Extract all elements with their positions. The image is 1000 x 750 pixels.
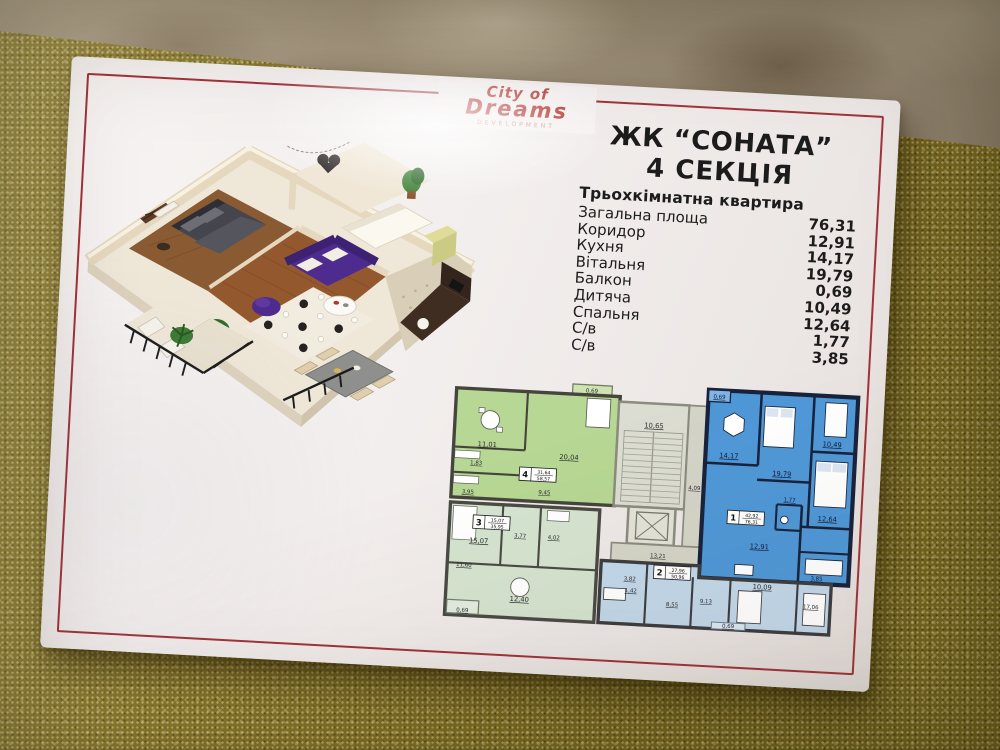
dim-label: 14,17 <box>719 452 739 461</box>
dim-label: 17,06 <box>803 604 819 611</box>
apartment-3d-render <box>61 102 498 458</box>
dim-label: 12,64 <box>817 515 837 524</box>
dim-label: 9,13 <box>700 599 713 606</box>
svg-text:3: 3 <box>476 517 483 527</box>
dim-label: 12,91 <box>750 542 770 551</box>
svg-text:76,31: 76,31 <box>745 519 759 526</box>
dim-label: 10,65 <box>644 421 664 430</box>
svg-text:1: 1 <box>730 512 737 522</box>
dim-label: 10,09 <box>752 583 772 592</box>
photo-scene: City of Dreams DEVELOPMENT ЖК “СОНАТА” 4… <box>0 0 1000 750</box>
dim-label: 3,82 <box>623 576 635 583</box>
svg-text:2: 2 <box>656 567 663 577</box>
floor-plan-drawing: 0,69 10,65 4,09 11,01 1,83 3,95 20,04 9,… <box>434 369 867 643</box>
flyer-paper: City of Dreams DEVELOPMENT ЖК “СОНАТА” 4… <box>40 56 901 692</box>
dim-label: 13,21 <box>650 553 666 560</box>
dim-label: 3,95 <box>462 489 474 496</box>
dim-label: 0,69 <box>456 608 469 615</box>
dim-label: 11,60 <box>456 562 472 569</box>
dim-label: 20,04 <box>559 453 579 462</box>
dim-label: 12,40 <box>509 595 529 604</box>
dim-label: 15,07 <box>469 536 489 545</box>
apartment-badge: 3 15,07 35,95 <box>473 515 511 531</box>
svg-text:4: 4 <box>522 469 529 479</box>
svg-text:58,57: 58,57 <box>537 476 551 483</box>
dim-label: 9,45 <box>538 490 550 497</box>
dim-label: 4,02 <box>547 535 559 542</box>
dim-label: 1,42 <box>625 588 637 595</box>
room-label: С/в <box>571 336 596 354</box>
dim-label: 1,83 <box>470 460 483 467</box>
plan-apartment-4 <box>451 378 621 506</box>
dim-label: 3,77 <box>514 533 526 540</box>
dim-label: 1,77 <box>783 497 795 504</box>
plan-apartment-1 <box>699 390 858 586</box>
area-table: Загальна площа76,31 Коридор12,91 Кухня14… <box>571 204 857 368</box>
dim-label: 4,09 <box>688 485 701 492</box>
apartment-badge: 2 27,96 50,96 <box>653 565 691 581</box>
apartment-badge: 4 31,64 58,57 <box>519 467 557 483</box>
apartment-info-panel: ЖК “СОНАТА” 4 СЕКЦІЯ Трьохкімнатна кварт… <box>571 120 861 368</box>
svg-text:35,95: 35,95 <box>490 524 504 531</box>
room-value: 3,85 <box>811 349 849 368</box>
dim-label: 0,69 <box>713 394 726 401</box>
dim-label: 19,79 <box>772 470 792 479</box>
dim-label: 0,69 <box>722 624 735 631</box>
apartment-badge: 1 42,92 76,31 <box>727 510 765 526</box>
dim-label: 3,85 <box>810 576 822 583</box>
dim-label: 10,49 <box>822 440 842 449</box>
svg-text:50,96: 50,96 <box>671 574 685 581</box>
dim-label: 8,55 <box>666 602 678 609</box>
dim-label: 0,69 <box>586 388 599 395</box>
dim-label: 11,01 <box>477 440 497 449</box>
